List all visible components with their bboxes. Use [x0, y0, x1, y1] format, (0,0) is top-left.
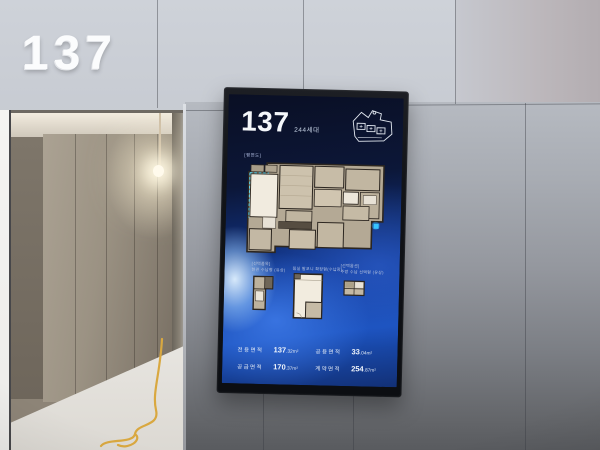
interior-room — [10, 110, 185, 450]
sub-floor-plan-1 — [252, 275, 275, 312]
area-exclusive: 전용면적 137 .32 m² — [237, 344, 315, 355]
sub-floor-plan-3 — [343, 280, 365, 297]
wall-seam — [455, 0, 456, 104]
area-label: 공용면적 — [315, 347, 351, 356]
area-value: 254 — [351, 364, 364, 373]
sub-plan-3-label: [선택옵션] 주방 수납 선택형 (유상) — [340, 263, 384, 276]
kiosk-display: 137 244세대 [평면도] — [217, 87, 409, 397]
sub-plan-1-label: [선택품목] 현관 수납형 (유상) — [251, 261, 285, 274]
wall-corner-edge — [183, 104, 186, 450]
area-value: 33 — [351, 347, 360, 356]
wall-panel — [455, 0, 600, 106]
area-label: 전용면적 — [237, 345, 273, 354]
unit-number: 137 — [241, 107, 290, 136]
main-floor-plan — [245, 159, 390, 262]
site-plan-icon — [346, 104, 397, 149]
area-contract: 계약면적 254 .87 m² — [315, 363, 387, 374]
area-label: 계약면적 — [315, 364, 351, 373]
area-value: 137 — [273, 345, 286, 354]
sub-floor-plan-2 — [292, 273, 323, 320]
area-supply: 공급면적 170 .37 m² — [237, 361, 315, 372]
household-count: 244세대 — [294, 124, 320, 138]
kiosk-screen: 137 244세대 [평면도] — [222, 94, 404, 387]
marble-pillar — [0, 110, 11, 450]
area-label: 공급면적 — [237, 362, 273, 371]
screen-header: 137 244세대 — [241, 107, 320, 137]
wall-seam — [157, 0, 158, 108]
area-value: 170 — [273, 362, 286, 371]
hallway-photo: 137 137 244세대 — [0, 0, 600, 450]
wall-seam — [525, 103, 526, 450]
area-table: 전용면적 137 .32 m² 공용면적 33 .04 m² 공급면적 170 … — [237, 344, 390, 374]
area-common: 공용면적 33 .04 m² — [315, 346, 387, 357]
extension-cable — [10, 113, 185, 450]
wall-unit-number: 137 — [22, 26, 117, 81]
